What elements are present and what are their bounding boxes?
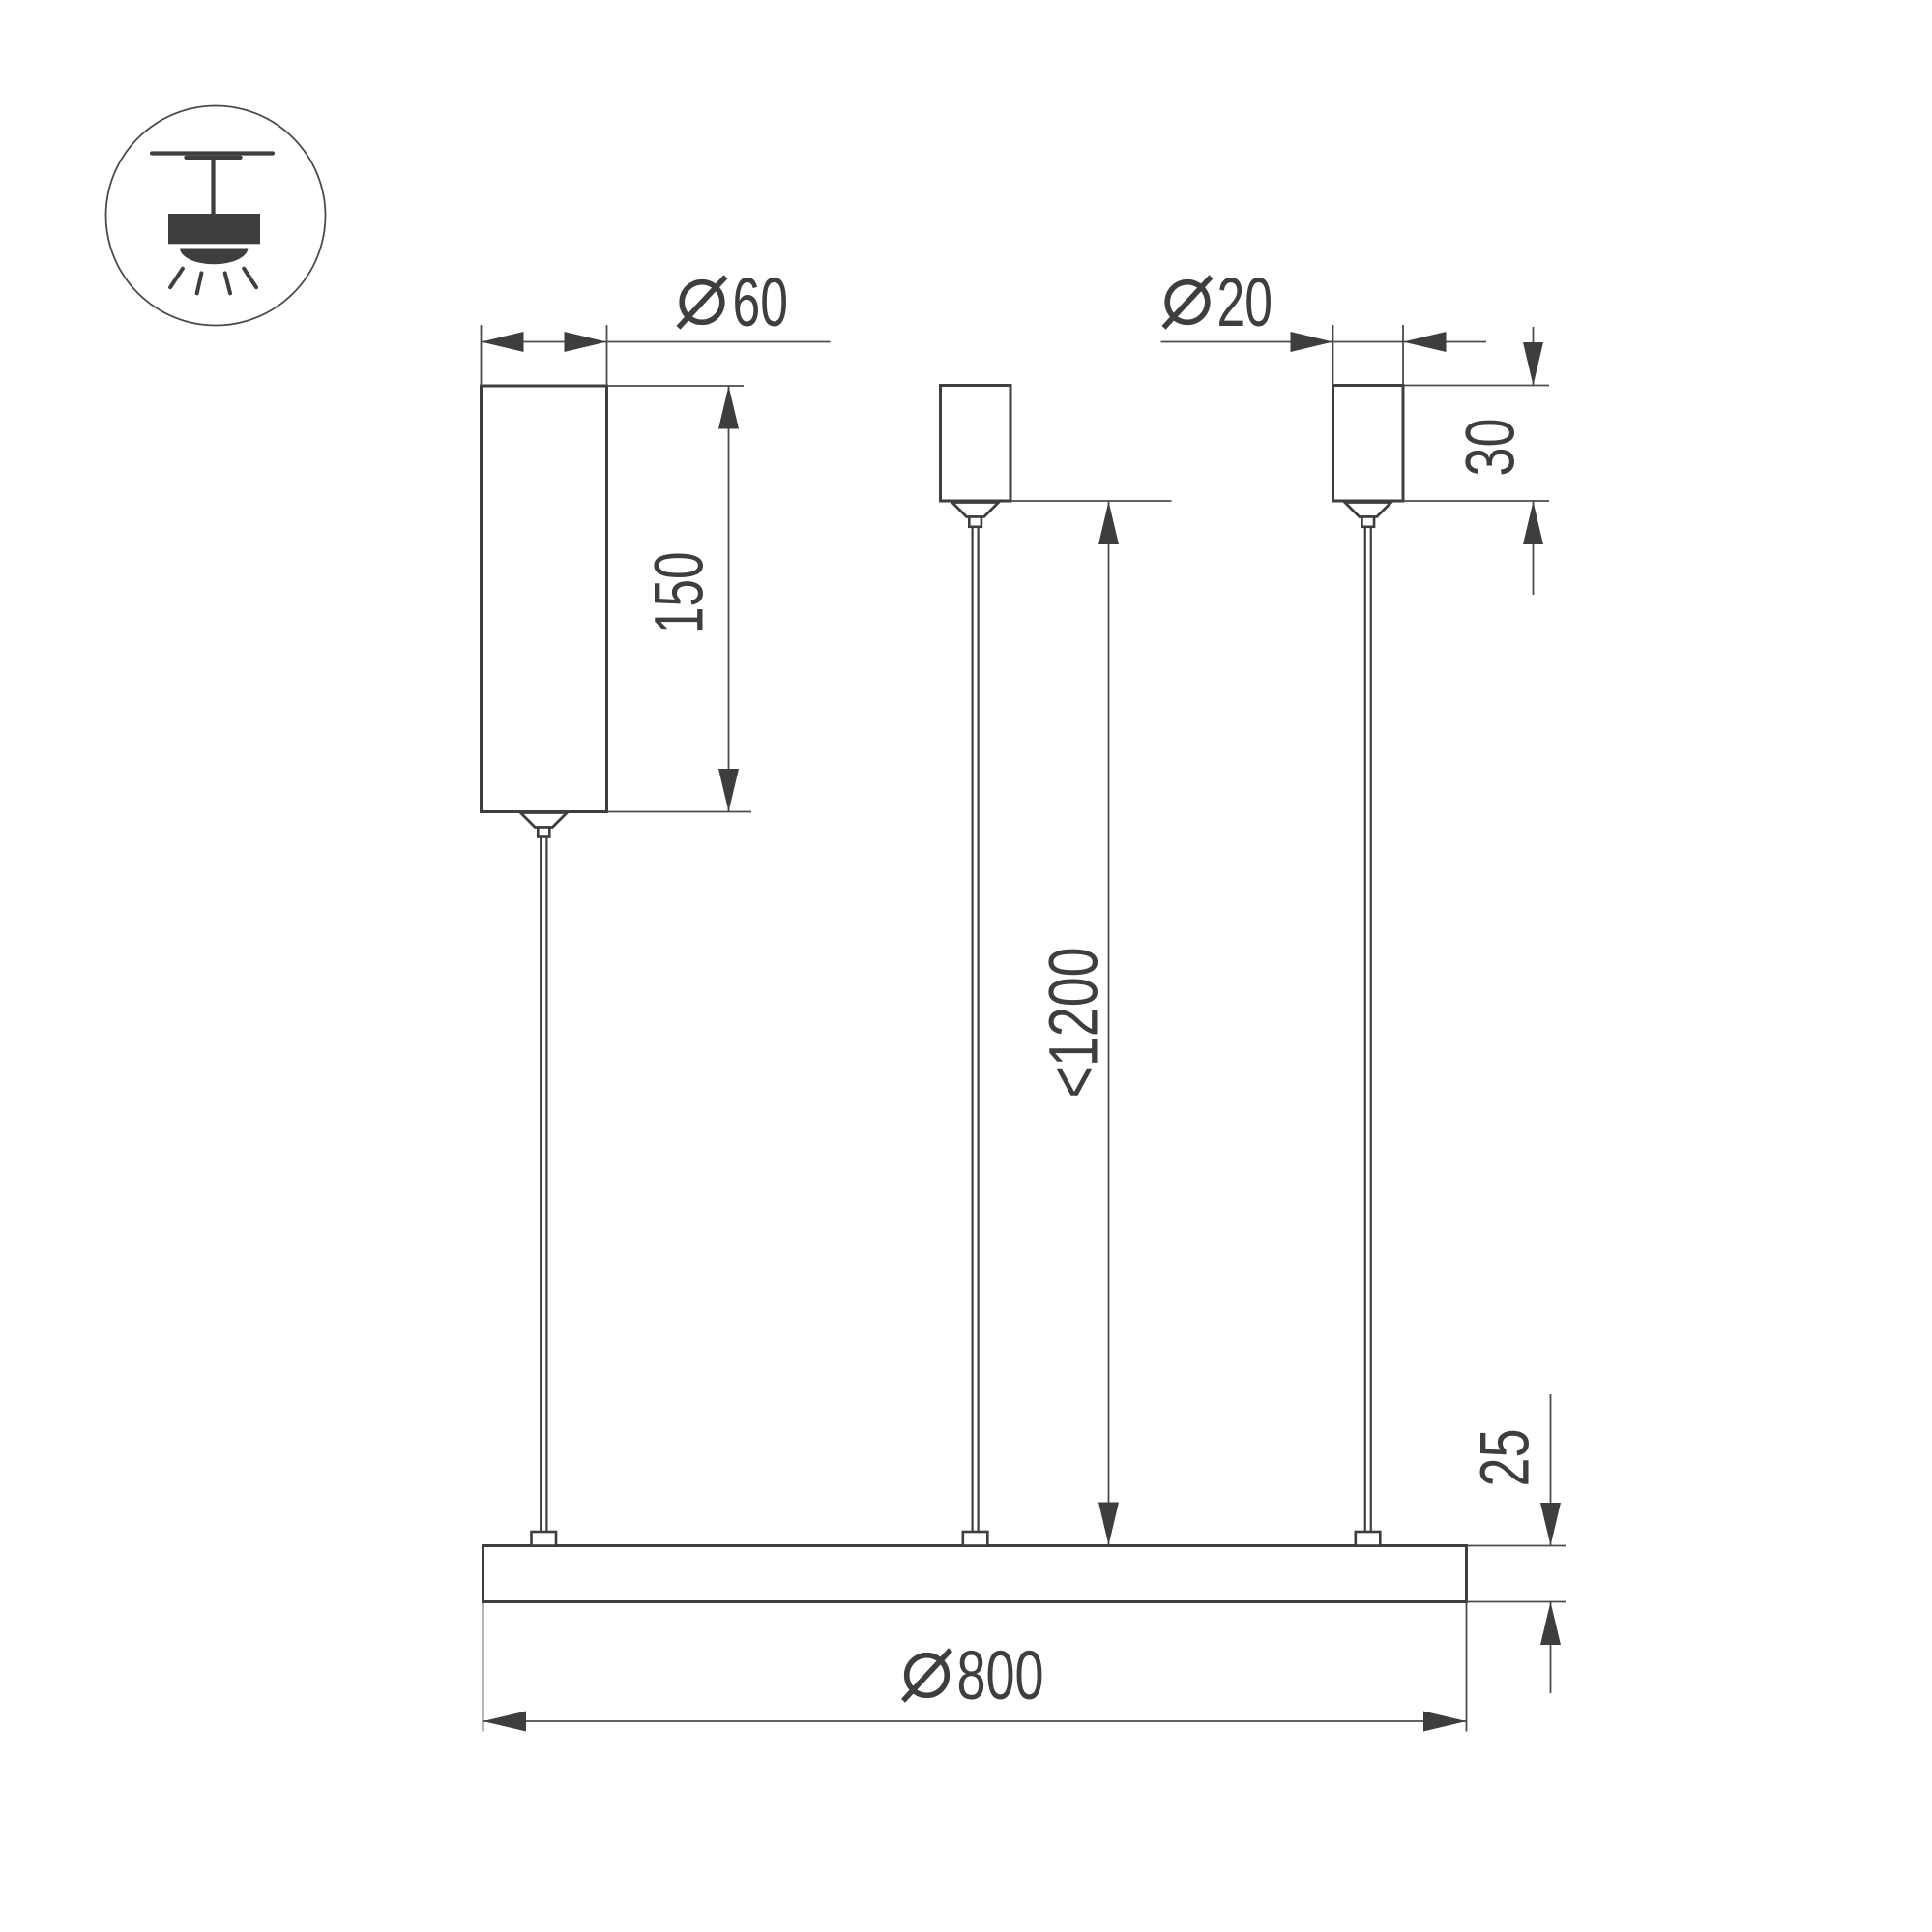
svg-text:25: 25 [1468, 1429, 1544, 1487]
svg-text:20: 20 [1217, 265, 1273, 341]
svg-text:<1200: <1200 [1037, 948, 1113, 1098]
svg-text:150: 150 [642, 552, 718, 635]
svg-text:60: 60 [733, 265, 789, 341]
svg-text:30: 30 [1453, 419, 1530, 477]
svg-text:800: 800 [957, 1638, 1044, 1714]
